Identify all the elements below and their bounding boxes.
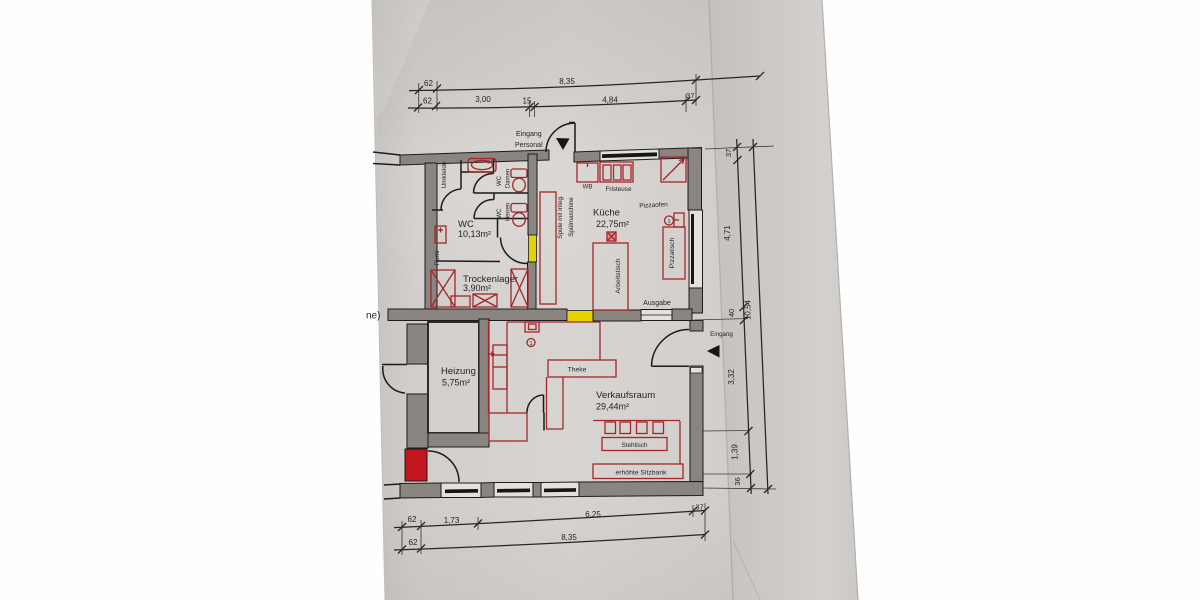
svg-text:22,75m²: 22,75m² — [596, 219, 629, 229]
svg-text:WC: WC — [497, 175, 503, 186]
svg-text:Umkleide: Umkleide — [441, 161, 448, 188]
svg-text:Personal: Personal — [515, 142, 543, 149]
svg-text:1: 1 — [529, 341, 532, 347]
svg-text:37: 37 — [686, 91, 694, 100]
svg-text:8,35: 8,35 — [559, 77, 575, 86]
svg-text:3,90m²: 3,90m² — [463, 283, 491, 293]
svg-text:3,00: 3,00 — [475, 95, 491, 104]
svg-text:4,84: 4,84 — [602, 96, 618, 105]
svg-text:37: 37 — [695, 503, 703, 512]
svg-text:Spülmaschine: Spülmaschine — [568, 197, 575, 237]
svg-text:4,71: 4,71 — [723, 225, 732, 241]
svg-text:62: 62 — [423, 97, 432, 106]
svg-text:29,44m²: 29,44m² — [596, 402, 629, 412]
svg-text:Spüle mit integ.: Spüle mit integ. — [557, 195, 564, 239]
svg-text:ne): ne) — [366, 311, 380, 322]
svg-text:Ausgabe: Ausgabe — [643, 300, 671, 307]
svg-text:36: 36 — [733, 477, 742, 485]
svg-text:erhöhte Sitzbank: erhöhte Sitzbank — [615, 470, 667, 477]
svg-text:Arbeitstisch: Arbeitstisch — [615, 258, 622, 293]
svg-text:10,13m²: 10,13m² — [458, 229, 491, 239]
svg-text:6,25: 6,25 — [585, 510, 601, 519]
svg-text:WB: WB — [583, 185, 593, 191]
svg-text:15: 15 — [523, 96, 532, 105]
svg-text:1,39: 1,39 — [731, 444, 740, 460]
svg-text:10,54: 10,54 — [744, 299, 753, 320]
svg-text:37: 37 — [724, 149, 733, 157]
svg-text:Heizung: Heizung — [441, 366, 476, 377]
svg-text:Eingang: Eingang — [710, 331, 733, 338]
svg-text:WC: WC — [497, 208, 503, 219]
svg-text:3,32: 3,32 — [727, 369, 736, 385]
svg-text:62: 62 — [409, 538, 418, 547]
svg-text:40: 40 — [727, 309, 736, 317]
svg-text:1: 1 — [667, 219, 670, 225]
svg-text:Verkaufsraum: Verkaufsraum — [596, 390, 655, 401]
svg-text:62: 62 — [408, 515, 417, 524]
svg-text:Damen: Damen — [506, 169, 512, 188]
svg-text:62: 62 — [424, 79, 433, 88]
svg-text:Eingang: Eingang — [516, 131, 542, 138]
svg-text:Stehtisch: Stehtisch — [622, 442, 648, 449]
svg-text:Theke: Theke — [568, 367, 587, 374]
svg-text:Pumi: Pumi — [434, 251, 441, 266]
svg-text:Küche: Küche — [593, 208, 620, 219]
svg-text:1,73: 1,73 — [444, 516, 460, 525]
svg-text:5,75m²: 5,75m² — [442, 378, 470, 388]
svg-text:Pizzatisch: Pizzatisch — [669, 237, 676, 268]
svg-text:Herren: Herren — [506, 203, 512, 221]
svg-text:Fristeuse: Fristeuse — [606, 186, 632, 193]
svg-text:8,35: 8,35 — [561, 533, 577, 542]
